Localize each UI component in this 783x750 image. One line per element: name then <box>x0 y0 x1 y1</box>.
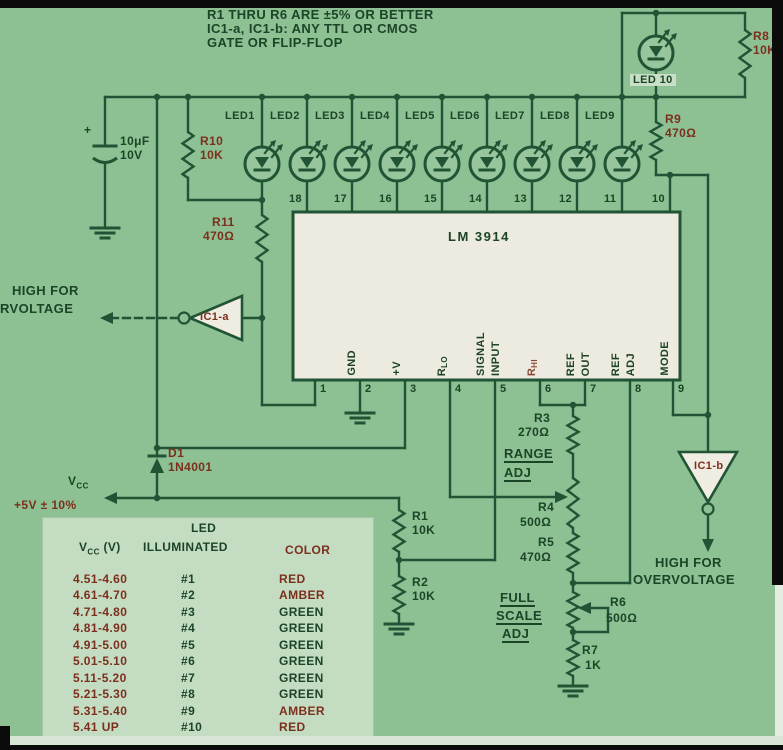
full-scale-line-3: ADJ <box>502 627 529 643</box>
d1-value: 1N4001 <box>168 461 212 474</box>
table-row-color: RED <box>279 573 306 586</box>
top-edge <box>0 0 783 8</box>
ic-pin-bottom-6: 6 <box>545 383 552 395</box>
table-row-color: AMBER <box>279 705 325 718</box>
r4-value: 500Ω <box>520 516 551 529</box>
ic-pin-label-8-2: ADJ <box>625 353 637 376</box>
led1-label: LED1 <box>225 110 255 122</box>
table-header-vcc: VCC (V) <box>79 541 121 558</box>
r11-value: 470Ω <box>203 230 234 243</box>
table-row-vcc: 4.71-4.80 <box>73 606 127 619</box>
table-row-led: #10 <box>181 721 202 734</box>
vcc-label: VCC <box>68 475 89 492</box>
full-scale-line-2: SCALE <box>496 609 542 625</box>
led6-label: LED6 <box>450 110 480 122</box>
ic-pin-bottom-1: 1 <box>320 383 327 395</box>
table-row-led: #7 <box>181 672 195 685</box>
ic-pin-label-5-2: INPUT <box>490 341 502 376</box>
ic-pin-label-6: RHI <box>526 359 541 376</box>
ic-pin-label-4: RLO <box>436 356 451 376</box>
d1-name: D1 <box>168 447 184 460</box>
led2-label: LED2 <box>270 110 300 122</box>
table-row-vcc: 5.11-5.20 <box>73 672 127 685</box>
table-header-color: COLOR <box>285 544 330 557</box>
r2-value: 10K <box>412 590 435 603</box>
ic-pin-top-18: 18 <box>289 193 302 205</box>
table-row-vcc: 4.91-5.00 <box>73 639 127 652</box>
table-row-color: GREEN <box>279 688 324 701</box>
r1-name: R1 <box>412 510 428 523</box>
led10-label: LED 10 <box>630 74 676 86</box>
table-row-led: #9 <box>181 705 195 718</box>
table-row-color: AMBER <box>279 589 325 602</box>
table-row-vcc: 4.81-4.90 <box>73 622 127 635</box>
table-header-illuminated: ILLUMINATED <box>143 541 228 554</box>
table-row-led: #1 <box>181 573 195 586</box>
led-table: LED VCC (V) ILLUMINATED COLOR 4.51-4.60#… <box>42 517 374 750</box>
table-row-vcc: 5.01-5.10 <box>73 655 127 668</box>
ic1a-label: IC1-a <box>200 311 229 323</box>
right-output-line-1: HIGH FOR <box>655 556 722 569</box>
ic-pin-label-2: GND <box>346 350 358 376</box>
left-output-line-1: HIGH FOR <box>12 284 79 297</box>
r8-name: R8 <box>753 30 769 43</box>
ic-pin-label-8-1: REF <box>610 353 622 376</box>
table-row-vcc: 4.51-4.60 <box>73 573 127 586</box>
r5-value: 470Ω <box>520 551 551 564</box>
ic-pin-bottom-4: 4 <box>455 383 462 395</box>
ic-name: LM 3914 <box>448 230 510 243</box>
ic-pin-bottom-9: 9 <box>678 383 685 395</box>
ic-pin-top-12: 12 <box>559 193 572 205</box>
r3-name: R3 <box>534 412 550 425</box>
table-row-led: #4 <box>181 622 195 635</box>
table-row-vcc: 5.41 UP <box>73 721 119 734</box>
led9-label: LED9 <box>585 110 615 122</box>
ic-pin-bottom-7: 7 <box>590 383 597 395</box>
table-row-color: GREEN <box>279 606 324 619</box>
r7-value: 1K <box>585 659 601 672</box>
table-header-led: LED <box>191 522 216 535</box>
r2-name: R2 <box>412 576 428 589</box>
r4-name: R4 <box>538 501 554 514</box>
table-row-led: #8 <box>181 688 195 701</box>
table-row-vcc: 5.31-5.40 <box>73 705 127 718</box>
ic-pin-top-14: 14 <box>469 193 482 205</box>
ic-pin-bottom-2: 2 <box>365 383 372 395</box>
left-output-line-2: RVOLTAGE <box>0 302 73 315</box>
bottom-edge-light <box>0 736 783 745</box>
ic-pin-bottom-8: 8 <box>635 383 642 395</box>
range-adj-line-2: ADJ <box>504 466 531 482</box>
table-row-led: #2 <box>181 589 195 602</box>
capacitor-polarity: + <box>84 124 91 137</box>
led4-label: LED4 <box>360 110 390 122</box>
r10-name: R10 <box>200 135 223 148</box>
capacitor-voltage: 10V <box>120 149 143 162</box>
table-row-led: #3 <box>181 606 195 619</box>
range-adj-line-1: RANGE <box>504 447 553 463</box>
table-row-color: GREEN <box>279 672 324 685</box>
note-line-3: GATE OR FLIP-FLOP <box>207 36 343 49</box>
note-line-1: R1 THRU R6 ARE ±5% OR BETTER <box>207 8 434 21</box>
note-line-2: IC1-a, IC1-b: ANY TTL OR CMOS <box>207 22 418 35</box>
table-row-color: RED <box>279 721 306 734</box>
r11-name: R11 <box>212 216 235 229</box>
ic-pin-label-5-1: SIGNAL <box>475 332 487 376</box>
ic-pin-label-7-2: OUT <box>580 352 592 376</box>
ic-pin-top-16: 16 <box>379 193 392 205</box>
table-row-led: #5 <box>181 639 195 652</box>
r6-name: R6 <box>610 596 626 609</box>
table-row-vcc: 4.61-4.70 <box>73 589 127 602</box>
ic-pin-top-10: 10 <box>652 193 665 205</box>
ic1b-label: IC1-b <box>694 460 724 472</box>
led8-label: LED8 <box>540 110 570 122</box>
led5-label: LED5 <box>405 110 435 122</box>
table-row-color: GREEN <box>279 622 324 635</box>
corner-notch <box>0 726 10 750</box>
ic-pin-bottom-5: 5 <box>500 383 507 395</box>
ic-pin-bottom-3: 3 <box>410 383 417 395</box>
full-scale-line-1: FULL <box>500 591 535 607</box>
r9-name: R9 <box>665 113 681 126</box>
table-row-led: #6 <box>181 655 195 668</box>
ic-pin-top-17: 17 <box>334 193 347 205</box>
r3-value: 270Ω <box>518 426 549 439</box>
ic-pin-label-9: MODE <box>659 341 671 376</box>
r6-value: 500Ω <box>606 612 637 625</box>
ic-pin-top-15: 15 <box>424 193 437 205</box>
r7-name: R7 <box>582 644 598 657</box>
right-edge-light <box>775 585 783 745</box>
ic-pin-top-13: 13 <box>514 193 527 205</box>
table-row-vcc: 5.21-5.30 <box>73 688 127 701</box>
table-row-color: GREEN <box>279 639 324 652</box>
right-output-line-2: OVERVOLTAGE <box>633 573 735 586</box>
r5-name: R5 <box>538 536 554 549</box>
vcc-tolerance: +5V ± 10% <box>14 499 77 512</box>
right-edge <box>772 0 783 585</box>
r1-value: 10K <box>412 524 435 537</box>
led3-label: LED3 <box>315 110 345 122</box>
bottom-edge <box>0 745 783 750</box>
ic-pin-label-7-1: REF <box>565 353 577 376</box>
ic-pin-top-11: 11 <box>604 193 616 205</box>
r10-value: 10K <box>200 149 223 162</box>
capacitor-value: 10μF <box>120 135 150 148</box>
r9-value: 470Ω <box>665 127 696 140</box>
schematic-page: R1 THRU R6 ARE ±5% OR BETTER IC1-a, IC1-… <box>0 0 783 750</box>
ic-pin-label-3: +V <box>391 361 403 376</box>
table-row-color: GREEN <box>279 655 324 668</box>
led7-label: LED7 <box>495 110 525 122</box>
